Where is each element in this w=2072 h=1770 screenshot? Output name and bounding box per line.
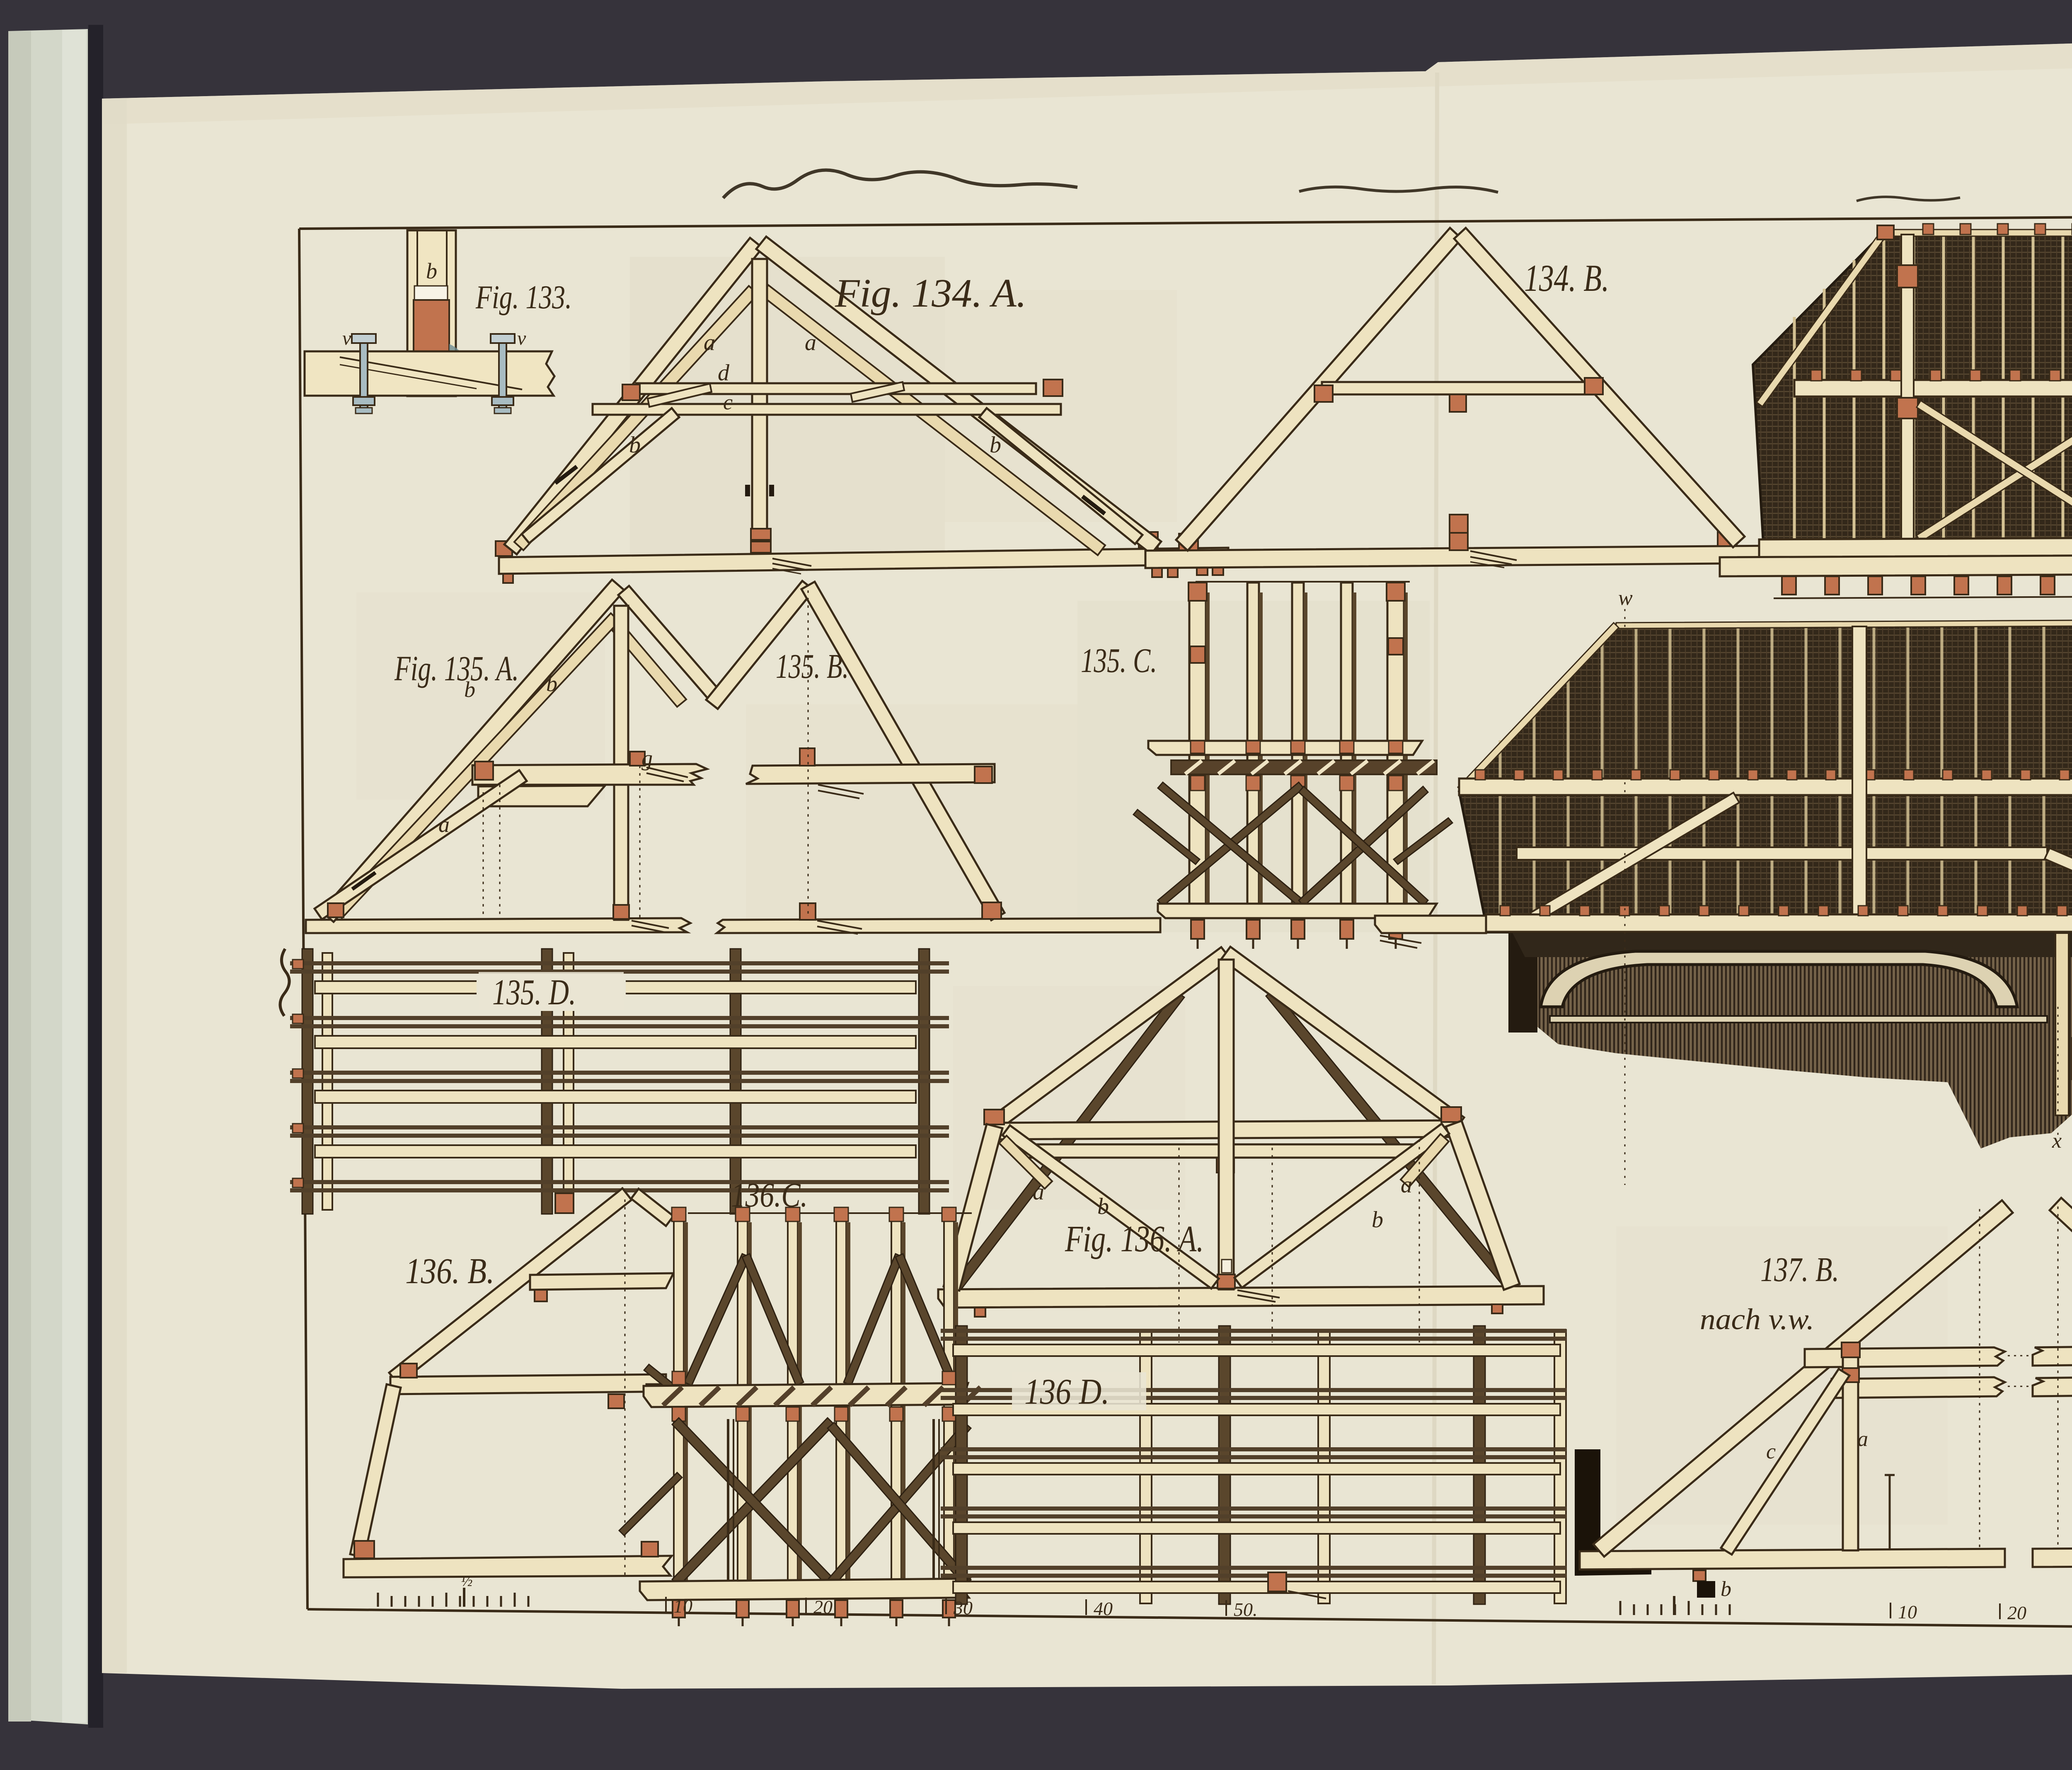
svg-text:w: w	[1618, 586, 1633, 610]
svg-text:d: d	[718, 360, 730, 386]
svg-text:a: a	[805, 330, 816, 355]
svg-text:a: a	[1401, 1172, 1412, 1198]
svg-text:20: 20	[813, 1596, 833, 1618]
svg-text:½: ½	[461, 1572, 473, 1590]
svg-text:Fig. 134. A.: Fig. 134. A.	[835, 271, 1026, 316]
svg-text:10: 10	[1898, 1601, 1917, 1622]
svg-text:v: v	[342, 327, 351, 349]
svg-text:a: a	[1857, 1427, 1868, 1451]
svg-text:a: a	[1033, 1179, 1044, 1205]
svg-text:50.: 50.	[1234, 1599, 1258, 1620]
svg-text:v: v	[517, 327, 526, 349]
svg-text:c: c	[1766, 1440, 1776, 1463]
svg-text:b: b	[426, 259, 437, 283]
svg-text:nach v.w.: nach v.w.	[1700, 1303, 1814, 1336]
svg-text:g: g	[641, 746, 653, 771]
svg-text:134. B.: 134. B.	[1524, 257, 1609, 299]
svg-text:10: 10	[673, 1596, 692, 1617]
svg-text:x: x	[2052, 1129, 2062, 1153]
svg-text:20: 20	[2007, 1602, 2026, 1623]
svg-text:135. B.: 135. B.	[776, 647, 849, 686]
svg-text:Fig. 136. A.: Fig. 136. A.	[1065, 1219, 1204, 1260]
svg-text:136. B.: 136. B.	[405, 1251, 494, 1291]
svg-text:40: 40	[1094, 1598, 1113, 1619]
svg-text:b: b	[1097, 1194, 1109, 1219]
svg-text:b: b	[464, 677, 475, 702]
svg-text:136 D.: 136 D.	[1024, 1372, 1109, 1412]
svg-text:137. B.: 137. B.	[1760, 1250, 1839, 1289]
svg-text:Fig. 135. A.: Fig. 135. A.	[394, 648, 519, 688]
svg-text:30: 30	[953, 1597, 973, 1618]
svg-text:b: b	[990, 432, 1001, 458]
svg-text:135. D.: 135. D.	[492, 972, 576, 1013]
svg-text:b: b	[1372, 1207, 1383, 1233]
svg-text:b: b	[629, 432, 641, 458]
svg-text:a: a	[438, 812, 450, 837]
svg-text:c: c	[723, 391, 733, 414]
svg-text:136.C.: 136.C.	[731, 1176, 808, 1214]
svg-text:b: b	[546, 671, 557, 696]
svg-text:135. C.: 135. C.	[1081, 641, 1157, 680]
svg-text:b: b	[1721, 1577, 1731, 1601]
svg-text:Fig. 133.: Fig. 133.	[475, 279, 572, 316]
svg-text:a: a	[704, 330, 715, 355]
